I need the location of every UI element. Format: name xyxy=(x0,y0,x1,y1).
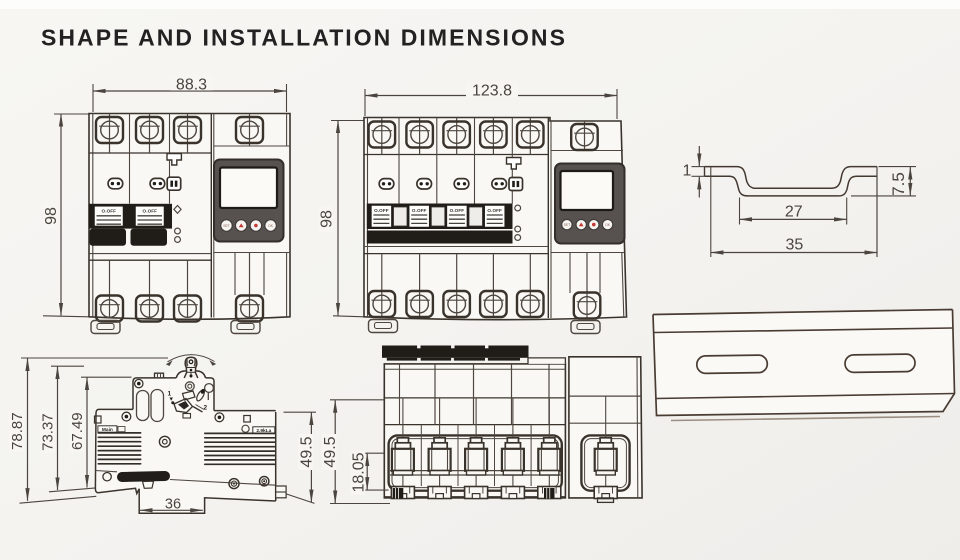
svg-text:98: 98 xyxy=(318,210,335,228)
svg-text:123.8: 123.8 xyxy=(472,82,512,99)
svg-text:OK: OK xyxy=(268,224,274,228)
svg-text:O.OFF: O.OFF xyxy=(487,208,502,213)
svg-text:SHAPE AND INSTALLATION DIMENSI: SHAPE AND INSTALLATION DIMENSIONS xyxy=(41,25,567,51)
svg-text:18.05: 18.05 xyxy=(351,452,368,492)
svg-text:O.OFF: O.OFF xyxy=(102,209,117,214)
svg-text:49.5: 49.5 xyxy=(322,436,339,467)
svg-text:27: 27 xyxy=(785,203,803,220)
svg-text:SET: SET xyxy=(564,223,571,227)
svg-text:98: 98 xyxy=(43,207,60,225)
svg-text:88.3: 88.3 xyxy=(176,76,207,93)
svg-text:OK: OK xyxy=(605,223,611,227)
svg-text:78.87: 78.87 xyxy=(9,412,26,450)
svg-text:2: 2 xyxy=(204,405,208,412)
svg-text:49.5: 49.5 xyxy=(299,436,316,467)
svg-text:73.37: 73.37 xyxy=(39,413,56,451)
svg-text:O.OFF: O.OFF xyxy=(450,208,465,213)
svg-text:35: 35 xyxy=(786,236,804,253)
svg-text:O.OFF: O.OFF xyxy=(374,208,389,213)
svg-text:67.49: 67.49 xyxy=(69,412,86,450)
svg-text:SET: SET xyxy=(223,224,230,228)
svg-text:O.OFF: O.OFF xyxy=(412,208,427,213)
svg-text:7.5: 7.5 xyxy=(889,172,908,196)
svg-text:1: 1 xyxy=(168,391,172,398)
svg-text:36: 36 xyxy=(165,497,181,513)
svg-text:Main: Main xyxy=(102,427,113,433)
svg-text:1: 1 xyxy=(683,163,692,180)
svg-text:O.OFF: O.OFF xyxy=(143,209,158,214)
